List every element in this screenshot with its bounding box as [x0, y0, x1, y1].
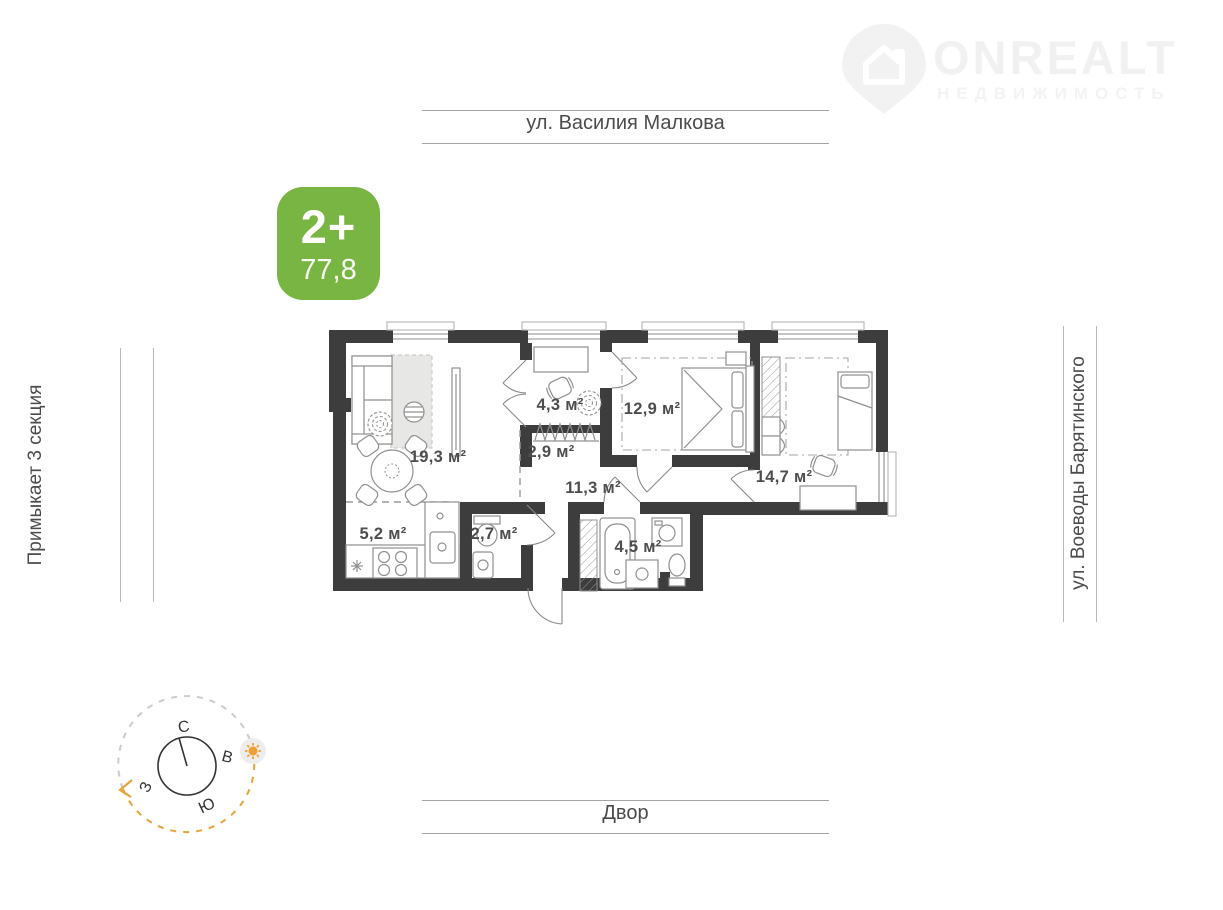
nightstand [726, 352, 746, 365]
desk-chair-2 [809, 453, 840, 479]
french-doors-living-study [503, 360, 526, 427]
rug [391, 355, 432, 448]
tv-unit [452, 368, 460, 456]
desk-2 [800, 486, 856, 510]
floor-plant [368, 412, 392, 436]
desk [534, 347, 588, 372]
compass-arc-gray [118, 696, 253, 789]
wardrobe-2 [762, 357, 785, 455]
compass-north: С [177, 718, 191, 736]
vanity-sink [626, 560, 658, 588]
side-table [404, 402, 424, 422]
floor-plan-page: ONREALT НЕДВИЖИМОСТЬ ул. Василия Малкова… [0, 0, 1223, 910]
window-bedroom-2 [772, 322, 864, 339]
room-label-wardrobe: 2,9 м² [527, 443, 574, 461]
door-study-bedroom [612, 352, 637, 388]
compass-west: З [137, 779, 156, 795]
room-label-study: 4,3 м² [536, 396, 583, 414]
room-label-living: 19,3 м² [410, 448, 467, 466]
single-bed [838, 372, 872, 450]
window-study [522, 322, 606, 339]
compass-south: Ю [196, 795, 218, 817]
shaft [580, 520, 597, 591]
compass: С В З Ю [118, 696, 266, 832]
room-label-bedroom: 12,9 м² [624, 400, 681, 418]
door-bedroom-corridor [637, 467, 672, 492]
room-label-kitchen: 5,2 м² [359, 525, 406, 543]
bedroom-2-furniture [762, 357, 872, 510]
window-bedroom [642, 322, 744, 339]
sun-icon [245, 743, 261, 759]
double-bed [682, 366, 754, 452]
wc-2 [669, 554, 685, 586]
room-label-toilet: 2,7 м² [470, 525, 517, 543]
entrance-door [528, 588, 562, 624]
stove [373, 548, 417, 578]
compass-east: В [220, 748, 235, 767]
living-room-furniture [352, 355, 460, 507]
room-label-bathroom: 4,5 м² [614, 538, 661, 556]
door-corridor-bedroom-2 [731, 470, 754, 502]
floor-plan-svg: 19,3 м² 5,2 м² 2,7 м² 4,3 м² 2,9 м² 11,3… [0, 0, 1223, 910]
window-living [387, 322, 454, 339]
room-label-bedroom-2: 14,7 м² [756, 468, 813, 486]
compass-needle [179, 738, 187, 766]
small-sink [473, 552, 493, 578]
room-label-corridor: 11,3 м² [565, 479, 621, 497]
sun-path-arrow [120, 780, 132, 797]
